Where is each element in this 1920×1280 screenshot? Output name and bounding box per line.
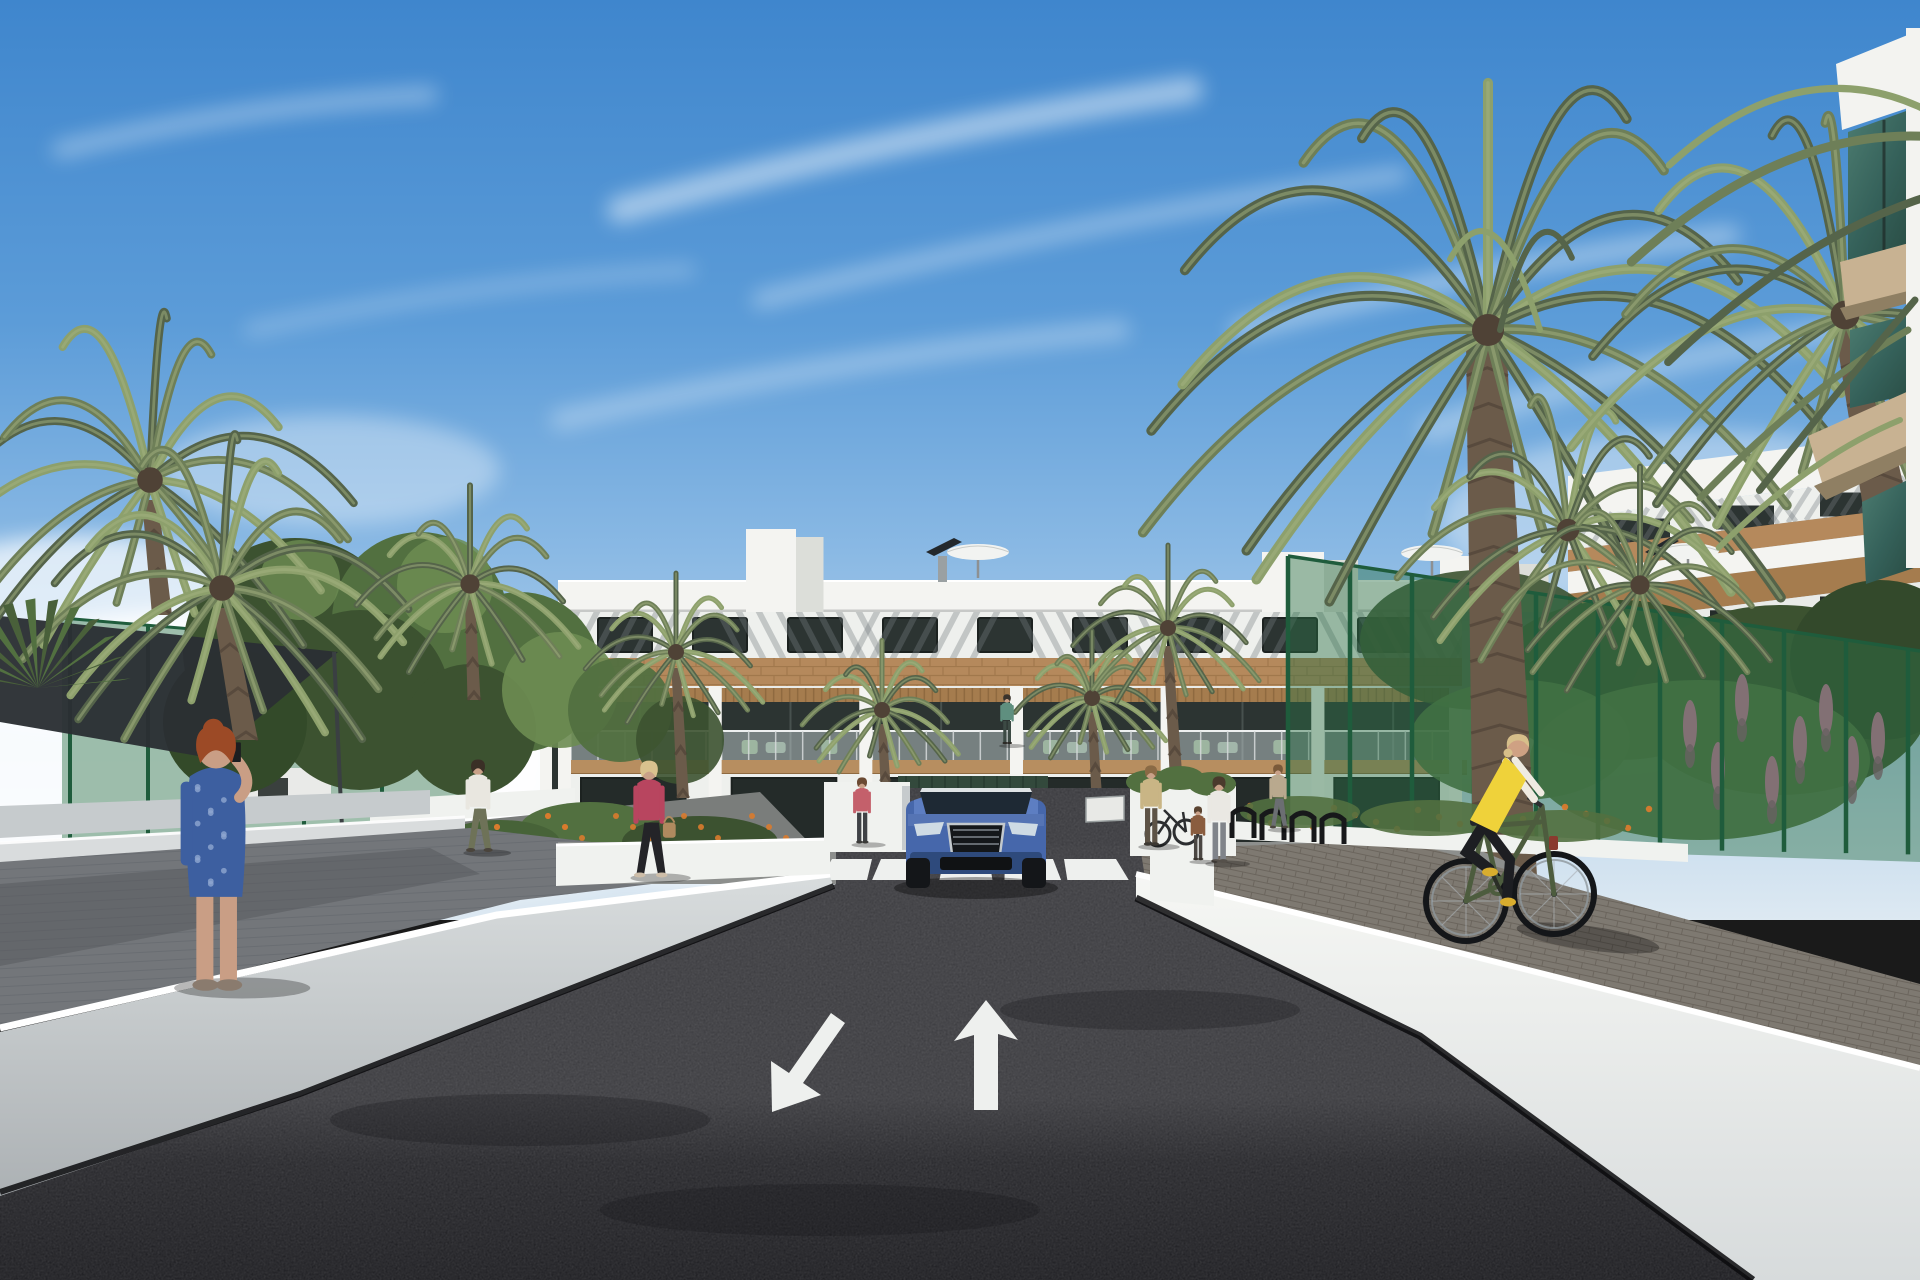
leg <box>1003 721 1006 744</box>
figure-shadow <box>851 842 885 847</box>
dress-dot <box>221 797 227 803</box>
orange-flower <box>579 835 585 841</box>
arm <box>181 782 193 866</box>
shoe <box>1151 842 1159 846</box>
asphalt-stain <box>330 1094 710 1146</box>
arm <box>853 792 856 814</box>
car-roof-edge <box>920 788 1032 792</box>
shoe <box>856 841 863 844</box>
leg <box>1199 835 1203 860</box>
torso <box>1192 815 1204 834</box>
orange-flower <box>613 813 619 819</box>
arm <box>1269 778 1272 799</box>
arm <box>1012 705 1014 722</box>
orange-flower <box>749 813 755 819</box>
balcony-unit <box>868 688 1015 774</box>
balcony-slab <box>868 760 1015 774</box>
shoe <box>484 848 493 852</box>
leg <box>1008 721 1011 744</box>
asphalt-stain <box>1000 990 1300 1030</box>
cyclist-hair-bun <box>1504 749 1513 758</box>
palm-crown-base <box>1084 690 1100 706</box>
orange-flower <box>630 824 636 830</box>
balcony-pier <box>1010 686 1023 774</box>
palm-crown-base <box>209 575 235 601</box>
torso <box>468 774 488 807</box>
palm-crown-base <box>137 467 163 493</box>
dress-dot <box>221 868 227 874</box>
shoe <box>1007 742 1012 744</box>
orange-flower <box>698 824 704 830</box>
arm <box>1000 705 1002 722</box>
cloud <box>160 415 500 525</box>
orange-flower <box>681 813 687 819</box>
dress-dot <box>195 857 201 863</box>
leg <box>1194 835 1198 860</box>
shoe <box>216 979 242 991</box>
car-headlight-left <box>914 822 944 836</box>
shoe <box>1270 826 1276 829</box>
arm <box>1284 778 1287 799</box>
shoe <box>1198 858 1203 860</box>
architectural-render-scene <box>0 0 1920 1280</box>
palm-crown-base <box>874 702 890 718</box>
handbag <box>663 823 676 838</box>
torso <box>1271 775 1285 798</box>
shoe <box>1003 742 1008 744</box>
shoe <box>1282 826 1288 829</box>
orange-flower <box>1562 804 1568 810</box>
right-wall-end-block <box>1150 848 1214 906</box>
car-wheel-left <box>906 858 930 888</box>
shoe <box>656 872 668 877</box>
cyclist-shoe <box>1500 898 1516 907</box>
arm <box>868 792 871 814</box>
orange-flower <box>562 824 568 830</box>
torso <box>1210 790 1229 821</box>
leg <box>1213 822 1219 862</box>
render-canvas <box>0 0 1920 1280</box>
stair-tower-side <box>796 537 824 613</box>
shoe <box>634 872 646 877</box>
figure-shadow <box>999 744 1025 748</box>
dress-dot <box>195 787 201 793</box>
arm <box>466 779 470 809</box>
stair-tower <box>746 529 796 613</box>
rear-reflector <box>1549 836 1558 850</box>
palm-crown-base <box>1160 620 1176 636</box>
orange-flower <box>1646 806 1652 812</box>
shoe <box>1193 858 1198 860</box>
leg <box>1152 808 1157 845</box>
shoe <box>466 848 475 852</box>
shoe <box>192 979 218 991</box>
torso <box>636 779 661 820</box>
car-grille <box>948 824 1004 854</box>
arm <box>1191 818 1193 836</box>
arm <box>1207 795 1211 823</box>
leg <box>863 813 867 843</box>
shoe <box>862 841 869 844</box>
torso <box>1142 778 1160 806</box>
dress-dot <box>195 821 201 827</box>
dress-dot <box>208 881 214 887</box>
palm-crown-base <box>460 574 479 593</box>
arm <box>633 786 638 824</box>
blue-suv <box>894 788 1058 899</box>
orange-flower <box>545 813 551 819</box>
figure-shadow <box>1189 860 1217 864</box>
car-headlight-right <box>1008 822 1038 836</box>
car-wheel-right <box>1022 858 1046 888</box>
shoe <box>1219 859 1228 863</box>
palm-crown-base <box>668 644 684 660</box>
shoe <box>1144 842 1152 846</box>
arm <box>1203 818 1205 836</box>
arm <box>486 779 490 809</box>
car-windshield <box>920 792 1032 814</box>
roof-flue <box>938 556 947 582</box>
leg <box>857 813 861 843</box>
leg <box>1220 822 1226 862</box>
ramp-sign <box>1086 796 1124 822</box>
orange-flower <box>494 824 500 830</box>
dress-dot <box>208 844 214 850</box>
arm <box>1227 795 1231 823</box>
dress-dot <box>221 834 227 840</box>
hair-bun <box>203 719 224 740</box>
cyclist-shoe <box>1482 868 1498 877</box>
asphalt-stain <box>600 1184 1040 1236</box>
leg <box>1145 808 1150 845</box>
palm-crown-base <box>1630 575 1649 594</box>
torso <box>1002 702 1013 720</box>
orange-flower <box>766 824 772 830</box>
torso <box>855 788 869 811</box>
dress-dot <box>208 810 214 816</box>
arm <box>1158 783 1162 809</box>
arm <box>659 786 664 824</box>
car-lower-intake <box>940 857 1012 870</box>
arm <box>1140 783 1144 809</box>
